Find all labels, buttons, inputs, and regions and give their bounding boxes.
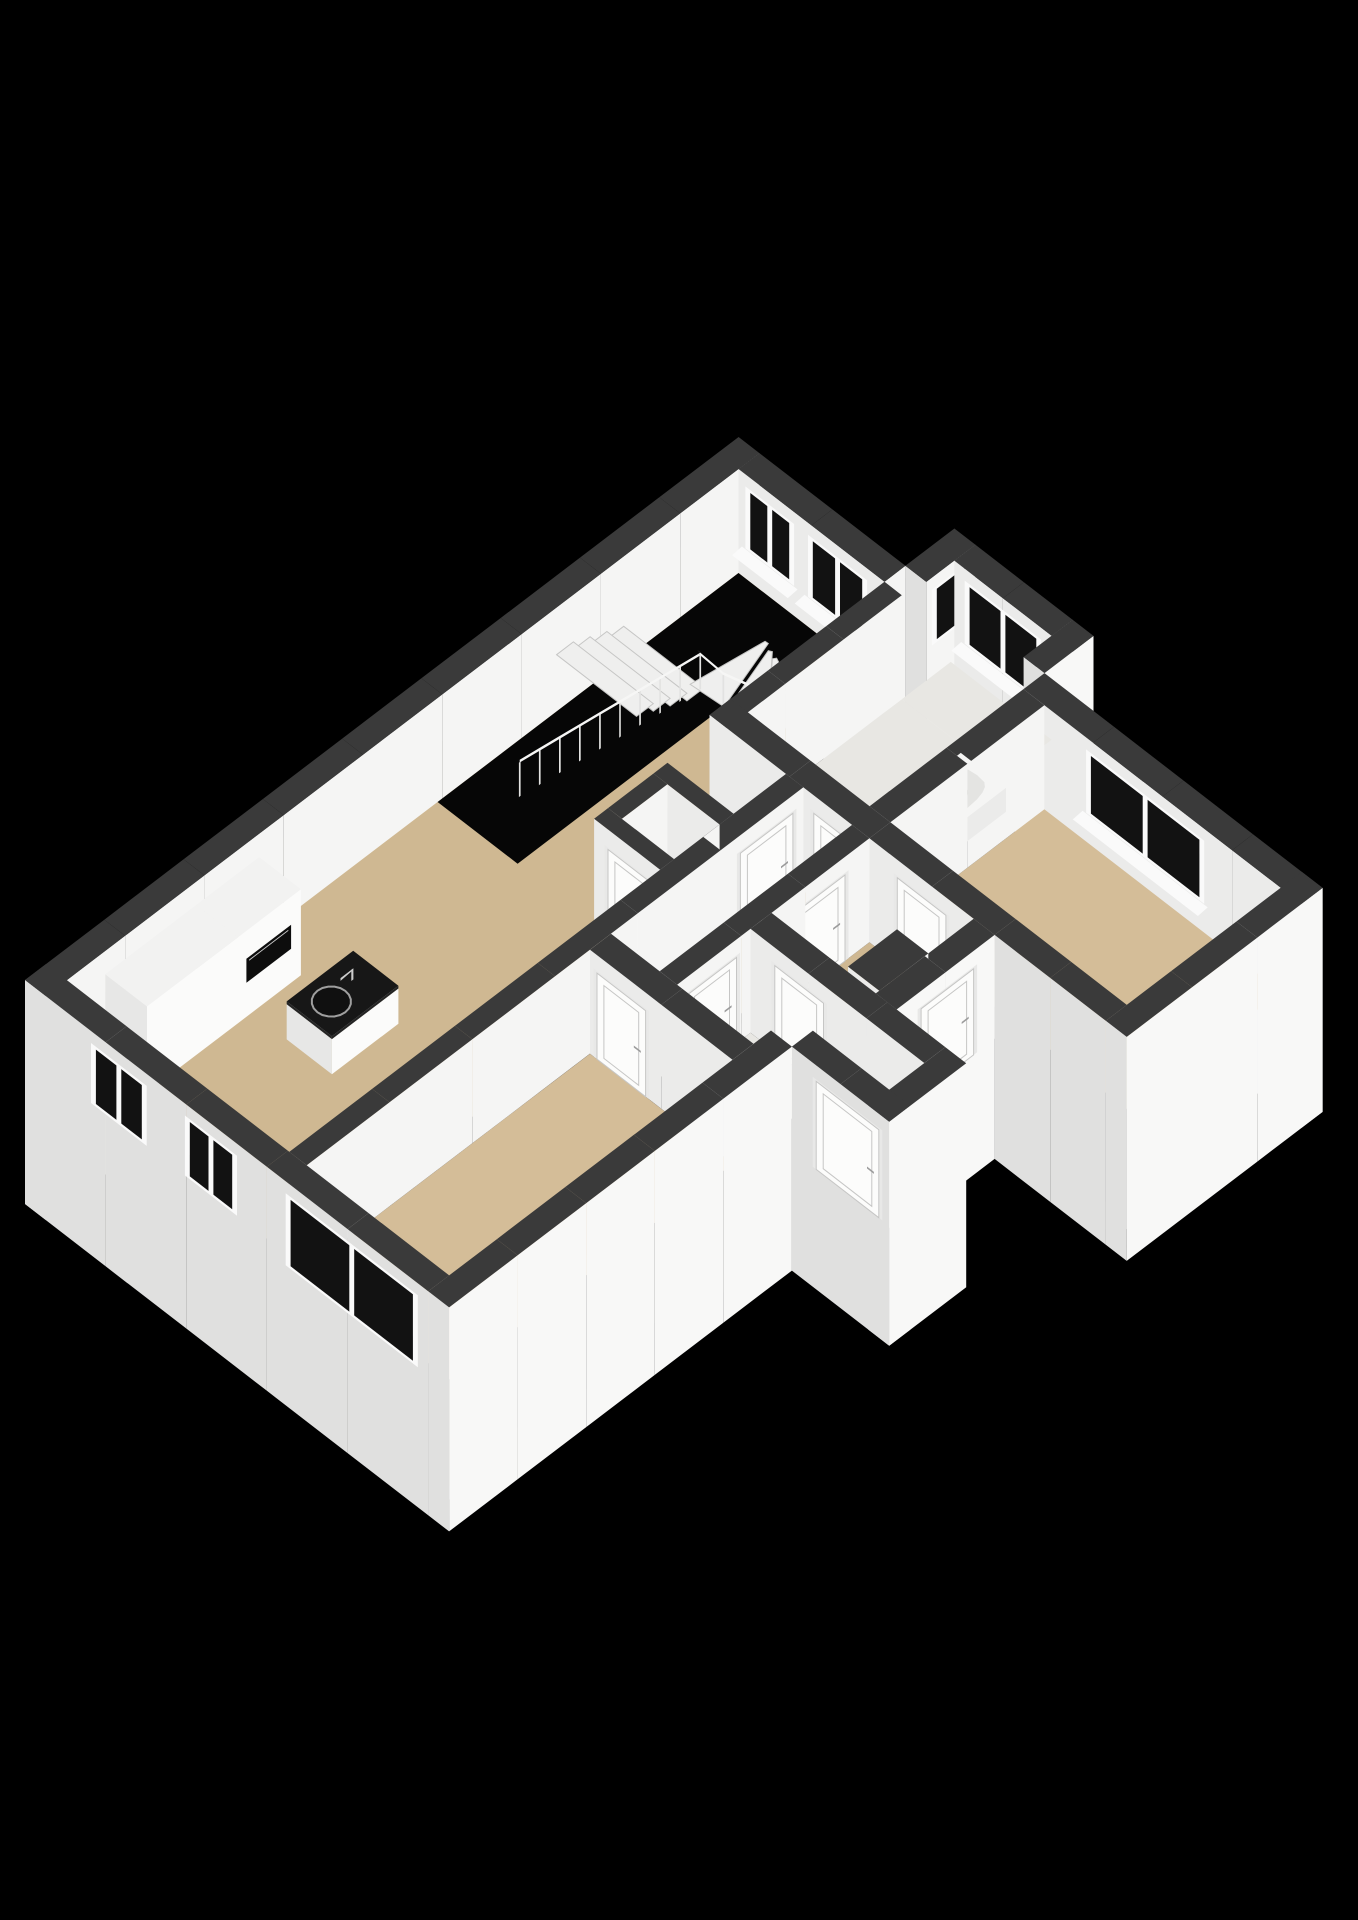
bedroomR-sw-lower-face-sw	[995, 935, 1051, 1202]
bedroom-left-window-mullion	[349, 1244, 354, 1317]
baluster	[699, 655, 701, 691]
baluster	[679, 666, 681, 702]
baluster	[559, 738, 561, 774]
living-window-1-mullion	[767, 505, 772, 568]
bedroomR-se-face-sw	[1106, 1021, 1127, 1261]
living-window-2-mullion	[835, 557, 840, 620]
baluster	[539, 750, 541, 786]
baluster	[659, 678, 661, 714]
vestibule-sw-face-se	[889, 1106, 910, 1346]
kitchen-window-1-mullion	[116, 1064, 121, 1125]
baluster	[599, 714, 601, 750]
baluster	[579, 726, 581, 762]
kitchen-window-2-mullion	[209, 1135, 214, 1196]
bedroomR-sw-lower-face-sw	[1050, 978, 1106, 1245]
bedroomL-se-face-sw	[428, 1291, 449, 1531]
baluster	[619, 702, 621, 738]
baluster	[639, 690, 641, 726]
screenshot-root	[0, 0, 1358, 1920]
bedroom-right-window-mullion	[1143, 794, 1148, 859]
bathroom-bay-window-mullion	[1001, 610, 1006, 675]
floor-plan-3d	[0, 0, 1358, 1920]
baluster	[519, 761, 521, 797]
